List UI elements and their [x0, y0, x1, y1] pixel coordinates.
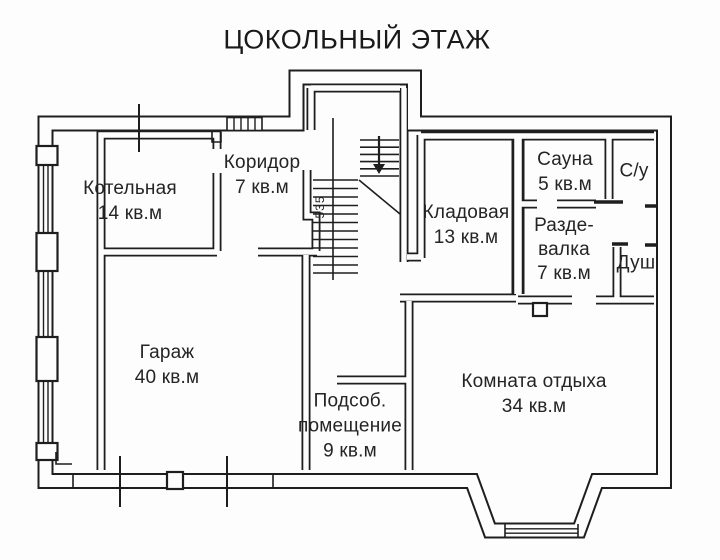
- room-label-dush: Душ: [617, 251, 656, 276]
- room-label-komnata-otdyha: Комната отдыха 34 кв.м: [461, 369, 606, 419]
- room-label-kotelnaya: Котельная 14 кв.м: [83, 176, 177, 226]
- room-label-podsob: Подсоб. помещение 9 кв.м: [298, 389, 402, 464]
- floor-plan-page: ЦОКОЛЬНЫЙ ЭТАЖ: [0, 0, 720, 560]
- stair-break-line: [359, 180, 400, 214]
- partition-stubs: [594, 202, 657, 245]
- entry-steps: [227, 118, 262, 131]
- room-label-sauna: Сауна 5 кв.м: [537, 147, 593, 197]
- room-label-koridor: Коридор 7 кв.м: [224, 150, 300, 200]
- room-label-kladovaya: Кладовая 13 кв.м: [423, 200, 510, 250]
- room-label-su: С/у: [619, 159, 648, 184]
- stair-width-dimension: 535: [313, 195, 327, 218]
- room-label-razdevalka: Разде- валка 7 кв.м: [534, 214, 594, 286]
- room-label-garazh: Гараж 40 кв.м: [135, 340, 200, 390]
- floor-plan-drawing: [0, 0, 720, 560]
